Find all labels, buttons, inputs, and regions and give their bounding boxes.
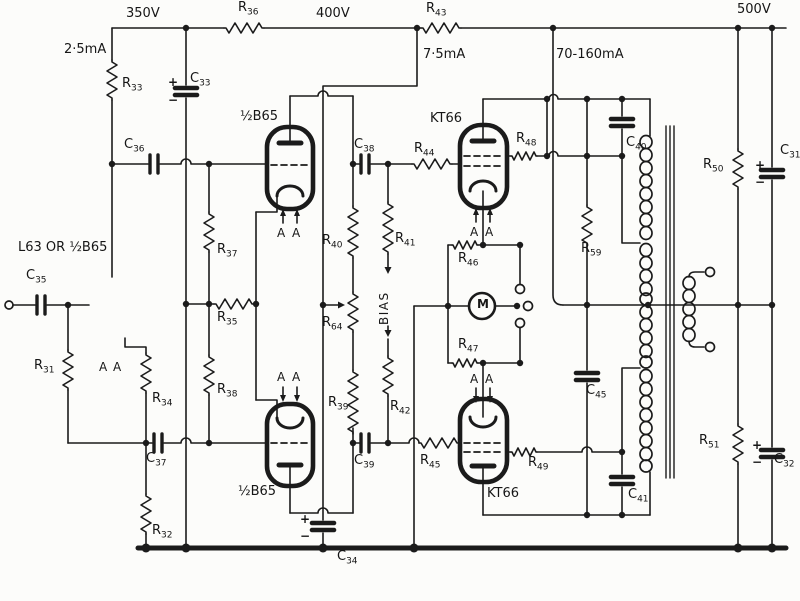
- capacitor-C38: [361, 155, 369, 173]
- capacitor-C33: [175, 88, 197, 95]
- resistor-R37: [204, 212, 214, 252]
- resistor-R38: [204, 355, 214, 395]
- input-terminal: [5, 301, 13, 309]
- capacitor-C39: [361, 434, 369, 452]
- driver-anode-network: [290, 28, 417, 548]
- resistor-R32: [141, 494, 151, 534]
- resistor-R59: [582, 205, 592, 245]
- decoupling-C33: [175, 28, 197, 548]
- output-terminal-top: [706, 268, 715, 277]
- capacitor-C36: [150, 155, 158, 173]
- resistor-R35: [214, 299, 254, 309]
- resistor-R45: [419, 438, 459, 448]
- transformer-core: [666, 126, 674, 478]
- resistor-R31: [63, 350, 73, 390]
- resistor-R40: [348, 206, 358, 258]
- resistor-R64-pot: [348, 292, 358, 332]
- meter-jack-top: [516, 285, 525, 294]
- tube-driver-lower: [256, 387, 313, 513]
- resistor-R39: [348, 370, 358, 434]
- ht-feed-500v: [553, 30, 563, 305]
- capacitor-C37: [154, 434, 162, 452]
- capacitor-C40: [611, 119, 633, 126]
- psu-divider: [733, 28, 783, 548]
- tube-kt66-upper: [460, 99, 507, 245]
- resistor-R48: [511, 152, 537, 160]
- resistor-R34: [141, 353, 151, 393]
- meter-network: [414, 241, 533, 548]
- resistor-R36: [224, 23, 264, 33]
- resistor-R42: [383, 356, 393, 396]
- capacitor-C32: [761, 450, 783, 457]
- schematic-wiring: [0, 0, 800, 601]
- heater-pins: [283, 387, 297, 399]
- capacitor-C31: [761, 170, 783, 177]
- capacitor-C34: [312, 523, 334, 530]
- resistor-R46: [452, 241, 478, 249]
- cathode: [470, 417, 496, 427]
- driver-bias-network: [186, 164, 256, 443]
- output-terminal-bottom: [706, 343, 715, 352]
- output-transformer: [640, 99, 715, 515]
- resistor-R50: [733, 149, 743, 189]
- resistor-R44: [412, 159, 452, 169]
- resistor-R49: [511, 448, 537, 456]
- cathode: [277, 418, 303, 428]
- ht-rail: [112, 23, 786, 33]
- resistor-R41: [383, 202, 393, 254]
- capacitor-C41: [611, 477, 633, 484]
- input-stage: [5, 28, 267, 548]
- cathode: [277, 186, 303, 196]
- secondary-winding: [683, 277, 695, 342]
- capacitor-C45: [576, 373, 598, 380]
- meter-plug: [524, 302, 533, 311]
- meter: [469, 293, 495, 319]
- resistor-R33: [107, 60, 117, 100]
- resistor-R51: [733, 424, 743, 464]
- tube-kt66-lower: [460, 363, 507, 515]
- tube-driver-upper: [256, 96, 313, 223]
- meter-jack-bottom: [516, 319, 525, 328]
- resistor-R43: [421, 23, 461, 33]
- resistor-R47: [452, 359, 478, 367]
- cathode: [470, 181, 496, 191]
- screen-stoppers: [507, 99, 622, 456]
- heater-pins: [283, 211, 297, 223]
- capacitor-C35: [37, 296, 45, 314]
- coupling-and-bias: [353, 155, 460, 452]
- schematic-canvas: 350V2·5mA400V7·5mA70-160mA500VL63 OR ½B6…: [0, 0, 800, 601]
